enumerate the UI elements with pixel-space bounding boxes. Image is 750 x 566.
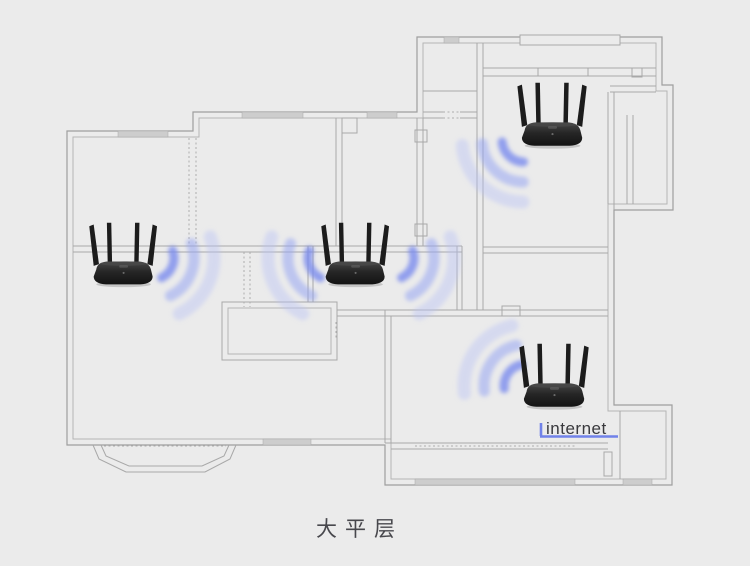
wifi-waves-icon — [257, 226, 330, 320]
floorplan-diagram: internet 大平层 — [0, 0, 750, 566]
floorplan-svg — [0, 0, 750, 566]
wifi-router-icon — [89, 223, 157, 287]
wifi-waves-icon — [152, 226, 225, 320]
wifi-router-icon — [519, 344, 588, 410]
caption: 大平层 — [316, 513, 403, 543]
wall-piers — [342, 35, 642, 476]
wifi-waves-icon — [392, 226, 465, 320]
internet-label: internet — [546, 419, 607, 439]
closet-outer-wall — [222, 302, 337, 360]
wifi-router-icon — [321, 223, 389, 287]
bay-window — [93, 445, 236, 472]
interior-walls — [73, 43, 656, 479]
closet-inner-wall — [228, 308, 331, 354]
wifi-router-icon — [517, 83, 586, 149]
